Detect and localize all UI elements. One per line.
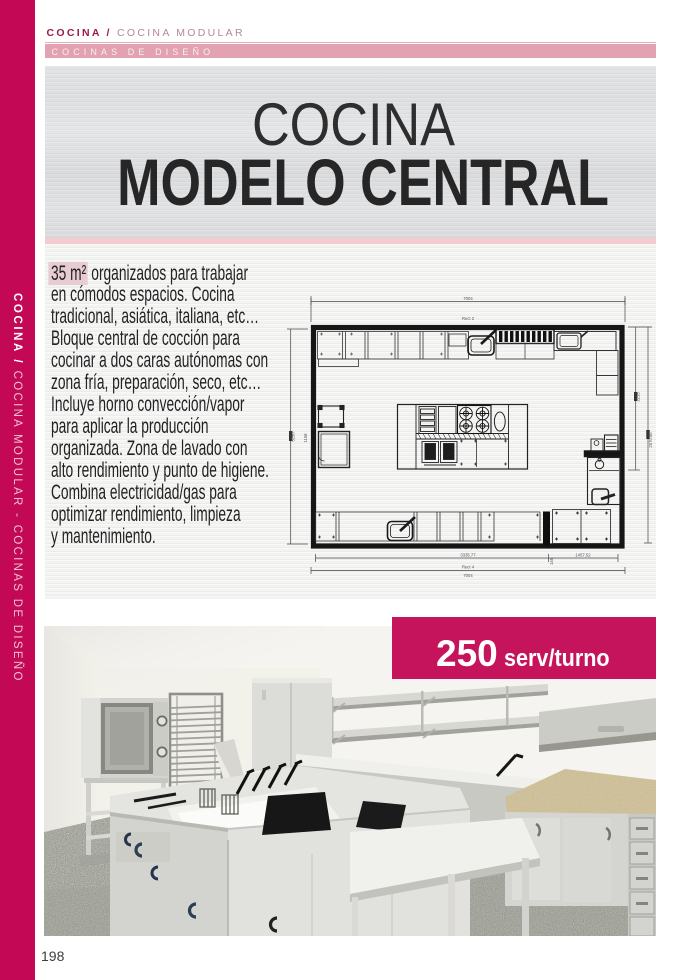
svg-text:Rect 2: Rect 2 bbox=[462, 316, 475, 321]
svg-text:2570.56: 2570.56 bbox=[648, 432, 653, 448]
svg-text:146: 146 bbox=[549, 557, 554, 565]
svg-text:7004: 7004 bbox=[463, 573, 473, 578]
svg-text:1457.52: 1457.52 bbox=[575, 553, 591, 558]
svg-text:3335.77: 3335.77 bbox=[460, 553, 476, 558]
svg-text:1158: 1158 bbox=[303, 433, 308, 443]
svg-text:Rect 4: Rect 4 bbox=[462, 565, 475, 570]
svg-text:7004: 7004 bbox=[463, 296, 473, 301]
svg-text:5250: 5250 bbox=[291, 432, 296, 442]
svg-text:2215: 2215 bbox=[636, 392, 641, 402]
